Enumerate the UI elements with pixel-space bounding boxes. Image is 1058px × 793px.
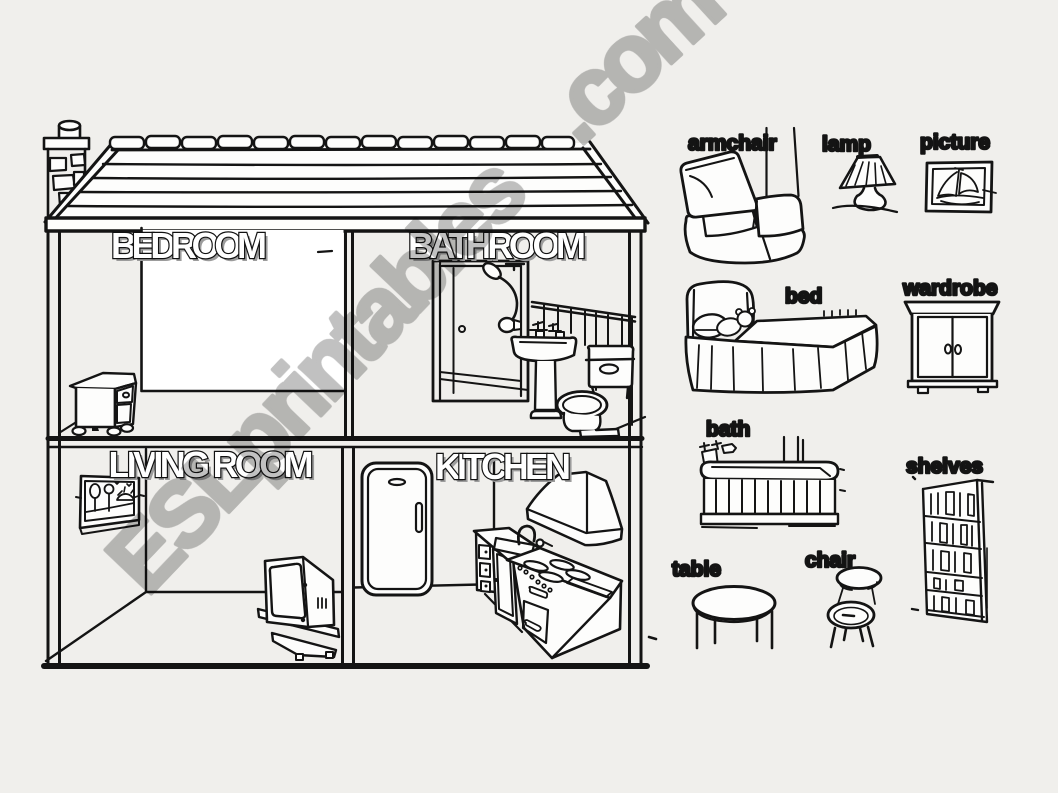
svg-text:shelves: shelves (906, 455, 983, 478)
svg-text:picture: picture (920, 131, 990, 154)
svg-text:table: table (672, 558, 721, 581)
svg-text:chair: chair (805, 549, 855, 572)
svg-text:wardrobe: wardrobe (902, 277, 998, 300)
svg-text:bath: bath (706, 418, 750, 441)
svg-text:armchair: armchair (688, 132, 777, 155)
svg-text:lamp: lamp (822, 133, 871, 156)
svg-text:BEDROOM: BEDROOM (111, 225, 267, 266)
svg-text:KITCHEN: KITCHEN (435, 446, 571, 487)
svg-text:bed: bed (785, 285, 822, 308)
